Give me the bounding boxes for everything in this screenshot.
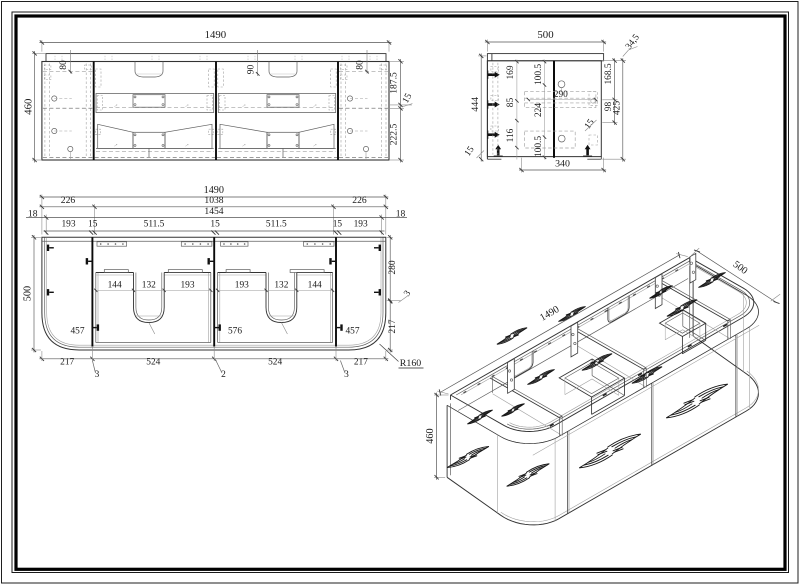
svg-text:460: 460 [22, 99, 34, 115]
svg-text:280: 280 [388, 260, 398, 274]
svg-text:576: 576 [228, 327, 242, 337]
svg-text:85: 85 [506, 98, 516, 108]
svg-text:193: 193 [354, 220, 368, 230]
svg-text:80: 80 [58, 60, 69, 70]
svg-text:511.5: 511.5 [266, 220, 287, 230]
svg-text:132: 132 [142, 281, 156, 291]
svg-text:217: 217 [388, 319, 398, 333]
svg-text:144: 144 [108, 281, 122, 291]
svg-text:500: 500 [23, 286, 34, 301]
svg-text:90: 90 [246, 65, 257, 75]
svg-text:168.5: 168.5 [604, 63, 614, 84]
svg-text:18: 18 [28, 208, 38, 219]
svg-text:226: 226 [61, 195, 76, 206]
svg-text:169: 169 [506, 65, 516, 79]
svg-text:193: 193 [61, 220, 75, 230]
svg-text:15: 15 [333, 220, 343, 230]
svg-text:290: 290 [554, 90, 568, 100]
svg-text:132: 132 [274, 281, 288, 291]
svg-text:457: 457 [70, 327, 84, 337]
svg-text:1490: 1490 [205, 29, 227, 41]
svg-text:18: 18 [396, 208, 406, 219]
svg-text:193: 193 [180, 281, 194, 291]
svg-text:100.5: 100.5 [534, 64, 544, 85]
svg-text:2: 2 [221, 370, 226, 380]
svg-text:3: 3 [344, 370, 349, 380]
svg-text:1038: 1038 [204, 195, 223, 206]
svg-text:100.5: 100.5 [534, 136, 544, 157]
svg-text:425: 425 [613, 101, 623, 115]
svg-text:340: 340 [555, 159, 570, 170]
svg-text:144: 144 [308, 281, 322, 291]
svg-text:80: 80 [355, 60, 366, 70]
svg-text:457: 457 [345, 327, 359, 337]
svg-text:1454: 1454 [204, 206, 223, 217]
svg-text:460: 460 [425, 428, 436, 443]
svg-text:1490: 1490 [204, 185, 224, 196]
svg-text:226: 226 [352, 195, 367, 206]
svg-text:15: 15 [210, 220, 220, 230]
svg-text:511.5: 511.5 [144, 220, 165, 230]
svg-text:500: 500 [537, 29, 553, 41]
svg-text:R160: R160 [400, 358, 421, 369]
svg-text:15: 15 [88, 220, 98, 230]
svg-text:444: 444 [470, 97, 481, 112]
svg-text:193: 193 [235, 281, 249, 291]
svg-text:222.5: 222.5 [389, 124, 400, 146]
svg-text:224: 224 [534, 103, 544, 117]
svg-text:116: 116 [506, 128, 516, 142]
svg-text:187.5: 187.5 [389, 72, 400, 94]
